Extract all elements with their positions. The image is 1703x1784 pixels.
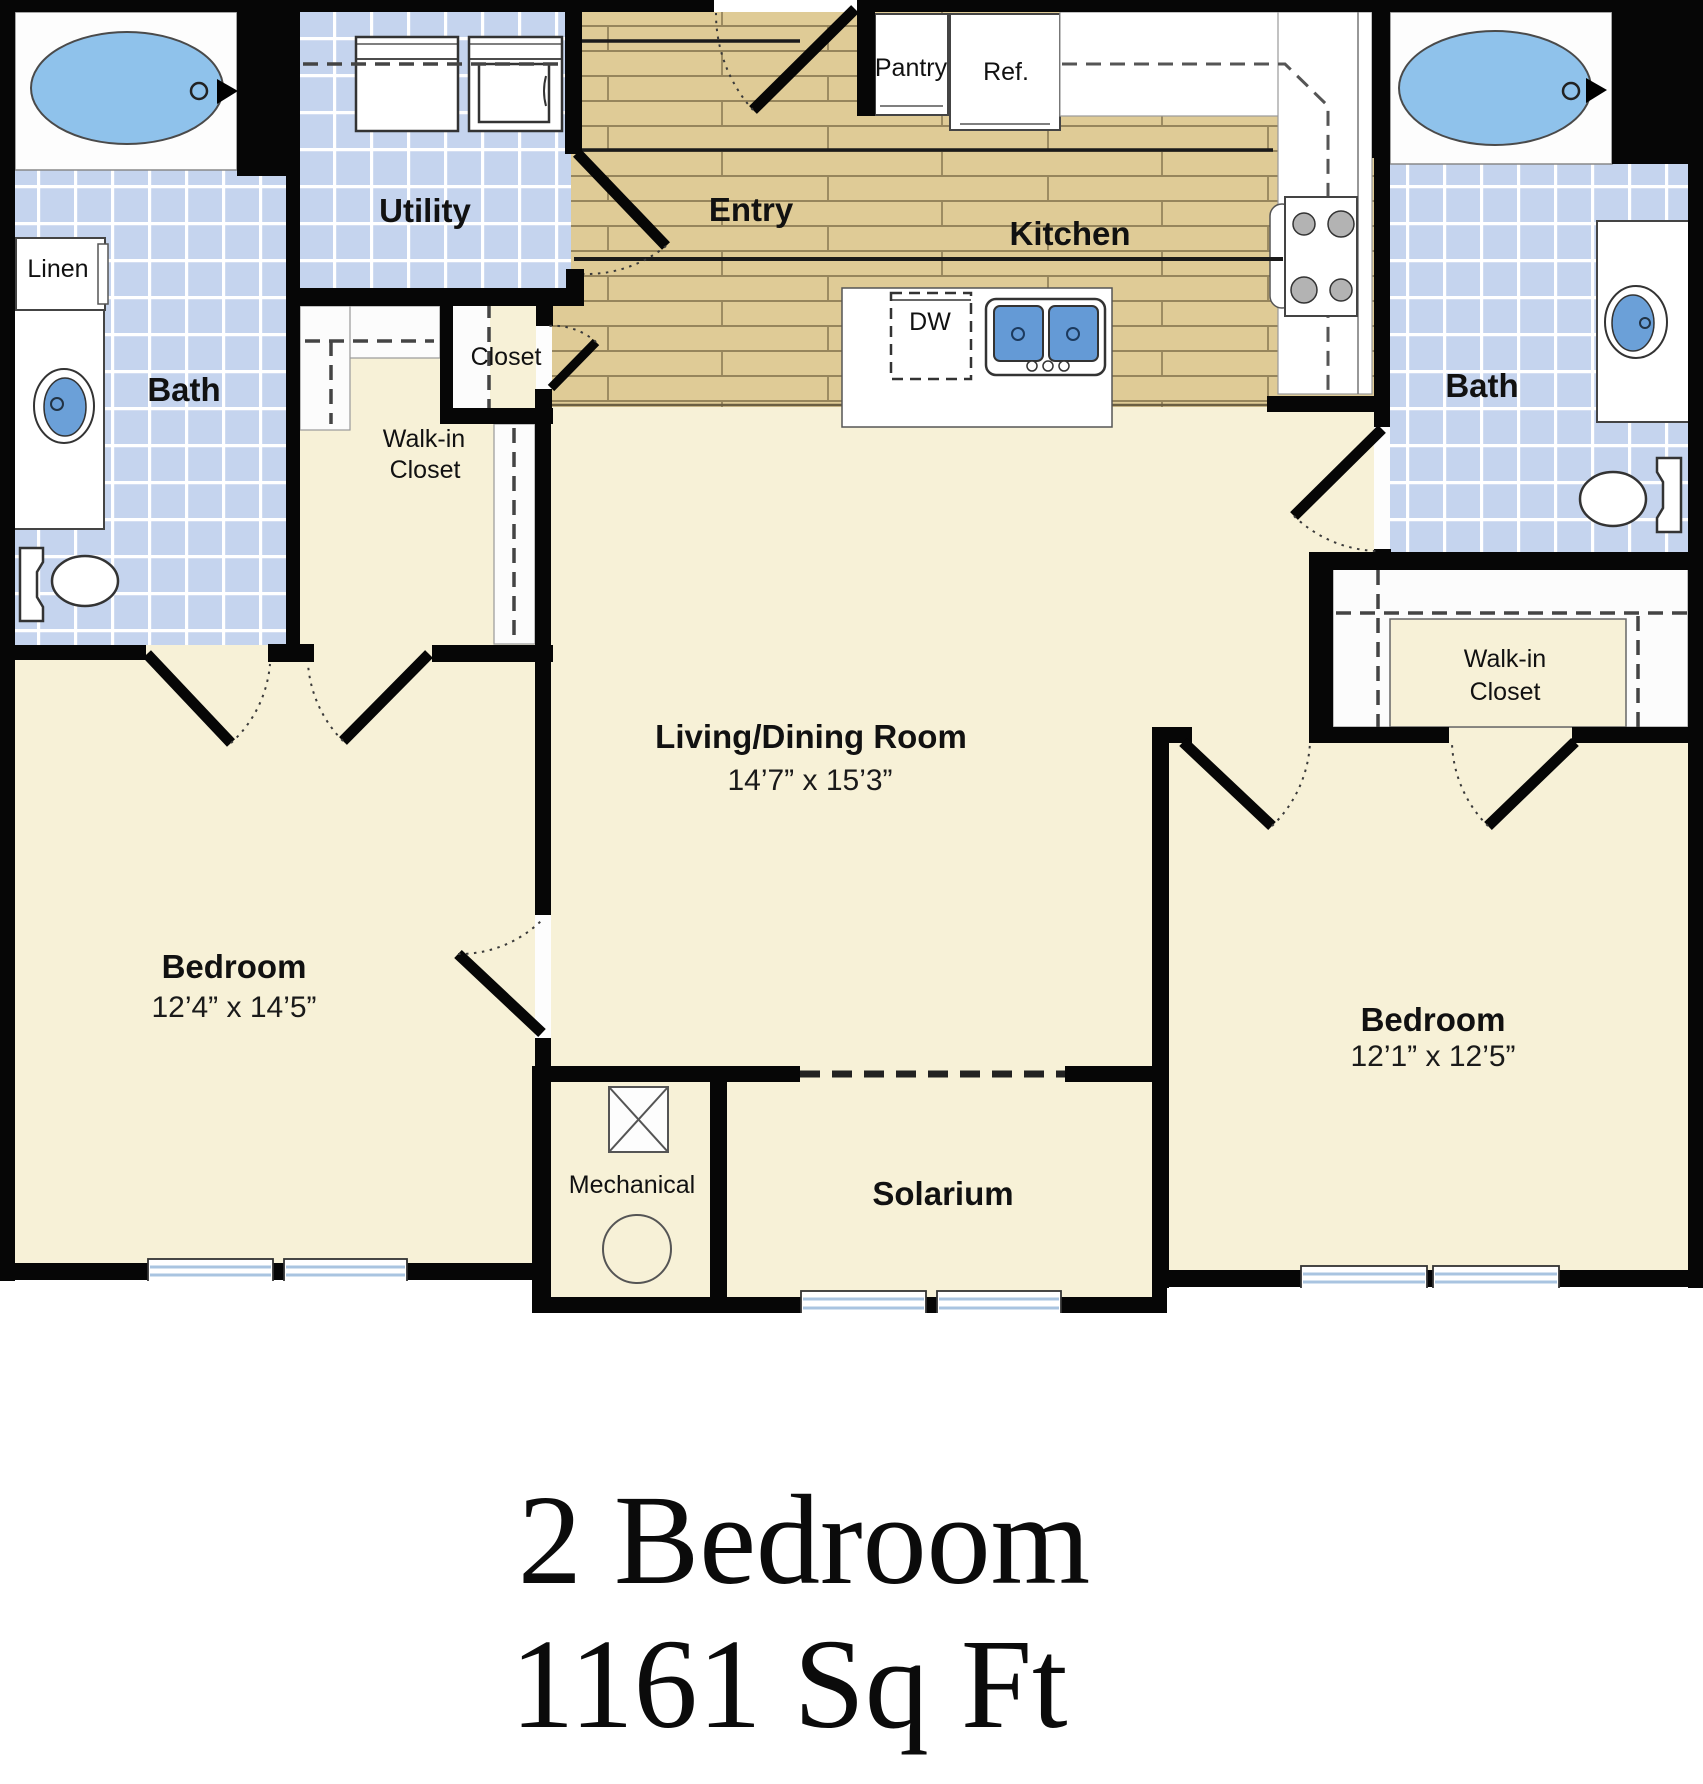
svg-text:DW: DW [909, 308, 951, 336]
svg-text:Bath: Bath [1445, 367, 1518, 404]
svg-text:1161 Sq Ft: 1161 Sq Ft [510, 1613, 1067, 1755]
svg-text:Bedroom: Bedroom [1361, 1001, 1506, 1038]
svg-text:Walk-in: Walk-in [1464, 645, 1546, 673]
svg-text:Living/Dining Room: Living/Dining Room [655, 718, 967, 755]
svg-text:Solarium: Solarium [872, 1175, 1013, 1212]
svg-text:Utility: Utility [379, 192, 471, 229]
svg-text:Bedroom: Bedroom [162, 948, 307, 985]
svg-text:Linen: Linen [27, 255, 88, 283]
svg-text:Bath: Bath [147, 371, 220, 408]
svg-text:Walk-in: Walk-in [383, 425, 465, 453]
svg-text:Pantry: Pantry [875, 54, 948, 82]
svg-text:Ref.: Ref. [983, 58, 1029, 86]
svg-text:14’7” x 15’3”: 14’7” x 15’3” [727, 764, 892, 797]
svg-text:12’4” x 14’5”: 12’4” x 14’5” [151, 991, 316, 1024]
svg-text:Mechanical: Mechanical [569, 1171, 695, 1199]
svg-text:Closet: Closet [1470, 678, 1541, 706]
svg-text:12’1” x 12’5”: 12’1” x 12’5” [1350, 1040, 1515, 1073]
svg-text:Entry: Entry [709, 191, 794, 228]
svg-text:Kitchen: Kitchen [1009, 215, 1130, 252]
svg-text:Closet: Closet [390, 456, 461, 484]
svg-text:Closet: Closet [471, 343, 542, 371]
svg-text:2 Bedroom: 2 Bedroom [518, 1469, 1090, 1611]
